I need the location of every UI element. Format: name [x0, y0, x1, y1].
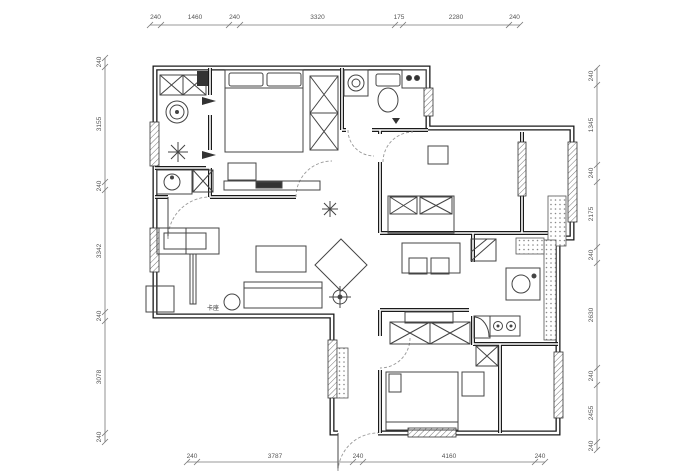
- dim-label: 240: [588, 370, 595, 381]
- hall-cabinet: [157, 228, 219, 254]
- floor-plan: 卡座: [0, 0, 700, 476]
- wardrobe-third: [390, 322, 470, 344]
- dim-label: 240: [96, 56, 103, 67]
- fridge: [476, 346, 498, 366]
- dim-label: 240: [535, 453, 546, 460]
- dim-label: 3078: [96, 369, 103, 384]
- bed-third: [386, 372, 458, 430]
- outer-walls: [155, 68, 572, 433]
- interior-window: [518, 142, 526, 196]
- dim-label: 3787: [268, 453, 283, 460]
- dim-label: 2280: [449, 14, 464, 21]
- bathroom-sink: [157, 170, 192, 194]
- dim-label: 240: [96, 431, 103, 442]
- rug-diamond: [315, 239, 367, 291]
- kitchen-sink: [506, 268, 540, 300]
- dim-label: 2630: [588, 307, 595, 322]
- nightstand: [462, 372, 484, 396]
- windows: [150, 88, 577, 437]
- desk-master: [224, 163, 320, 190]
- dim-label: 240: [96, 310, 103, 321]
- floor-plan-canvas: 卡座: [0, 0, 700, 476]
- dim-label: 3342: [96, 243, 103, 258]
- bed-master: [225, 70, 303, 152]
- coffee-table: [256, 246, 306, 272]
- dim-label: 240: [150, 14, 161, 21]
- window: [424, 88, 433, 116]
- dim-label: 2175: [588, 206, 595, 221]
- dim-label: 240: [353, 453, 364, 460]
- floor-drain: [392, 118, 400, 124]
- bench: [405, 312, 453, 323]
- bed-second: [388, 196, 454, 233]
- toilet: [376, 74, 400, 112]
- dim-label: 4160: [442, 453, 457, 460]
- side-table: [428, 146, 448, 164]
- dim-label: 240: [187, 453, 198, 460]
- stove: [490, 316, 520, 336]
- dimension-bottom: 240 3787 240 4160 240: [184, 453, 548, 465]
- dim-label: 240: [588, 70, 595, 81]
- shaft-column: [146, 286, 174, 312]
- window: [408, 428, 456, 437]
- plant-icon: [322, 201, 338, 217]
- dim-label: 240: [588, 249, 595, 260]
- kitchen-counter: [544, 240, 556, 340]
- ceiling-lamp-icon: [329, 286, 351, 308]
- window: [328, 340, 337, 398]
- dim-label: 175: [394, 14, 405, 21]
- dim-label: 3320: [310, 14, 325, 21]
- interior-walls: [155, 68, 558, 433]
- kitchen-counter: [516, 238, 544, 254]
- window: [568, 142, 577, 222]
- dim-label: 240: [509, 14, 520, 21]
- bath-shelf: [402, 70, 426, 88]
- dim-label: 3155: [96, 116, 103, 131]
- booth-bench: [190, 254, 196, 304]
- wardrobe-master: [310, 76, 338, 150]
- dim-label: 1460: [188, 14, 203, 21]
- sofa: [244, 282, 322, 308]
- side-stool: [224, 294, 240, 310]
- water-heater: [197, 71, 208, 86]
- dim-label: 2455: [588, 405, 595, 420]
- vanity-counter: [344, 70, 368, 96]
- dim-label: 1345: [588, 117, 595, 132]
- dimension-top: 240 1460 240 3320 175 2280 240: [147, 14, 523, 28]
- booth-seat-label: 卡座: [207, 304, 219, 312]
- dim-label: 240: [96, 180, 103, 191]
- washing-machine: [166, 101, 188, 123]
- shoe-cabinet: [337, 348, 348, 398]
- window: [150, 228, 159, 272]
- dim-label: 240: [588, 167, 595, 178]
- window: [554, 352, 563, 418]
- dimension-left: 240 3155 240 3342 240 3078 240: [96, 55, 108, 445]
- balcony-storage: [548, 196, 566, 246]
- dim-label: 240: [229, 14, 240, 21]
- window: [150, 122, 159, 166]
- plant-icon: [168, 142, 188, 162]
- dimension-right: 240 1345 240 2175 240 2630 240 2455 240: [588, 65, 600, 453]
- dim-label: 240: [588, 440, 595, 451]
- dining-table: [402, 243, 460, 274]
- base-cabinet: [474, 316, 490, 338]
